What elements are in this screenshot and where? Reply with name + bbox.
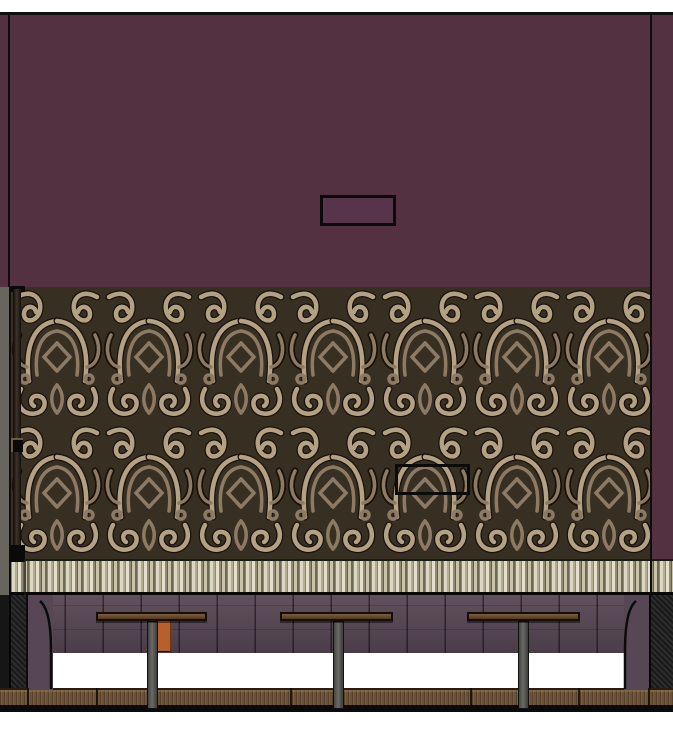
table-3-top <box>467 612 580 621</box>
table-2-top <box>280 612 393 621</box>
table-2-pedestal-leg <box>333 621 344 709</box>
table-1-top <box>96 612 207 621</box>
wallpaper-blocking-outline <box>395 464 470 495</box>
tile-seam-left <box>24 559 26 595</box>
right-wall-edge-line <box>650 15 652 561</box>
tile-seam-right <box>650 559 652 595</box>
elevation-drawing <box>0 0 673 729</box>
drapery-rod-foot <box>9 545 25 562</box>
drapery-rod <box>13 289 21 561</box>
drapery-rod-knob <box>11 438 23 452</box>
table-3-pedestal-leg <box>518 621 529 709</box>
orange-chair-back <box>157 621 171 652</box>
table-1-pedestal-leg <box>147 621 158 709</box>
